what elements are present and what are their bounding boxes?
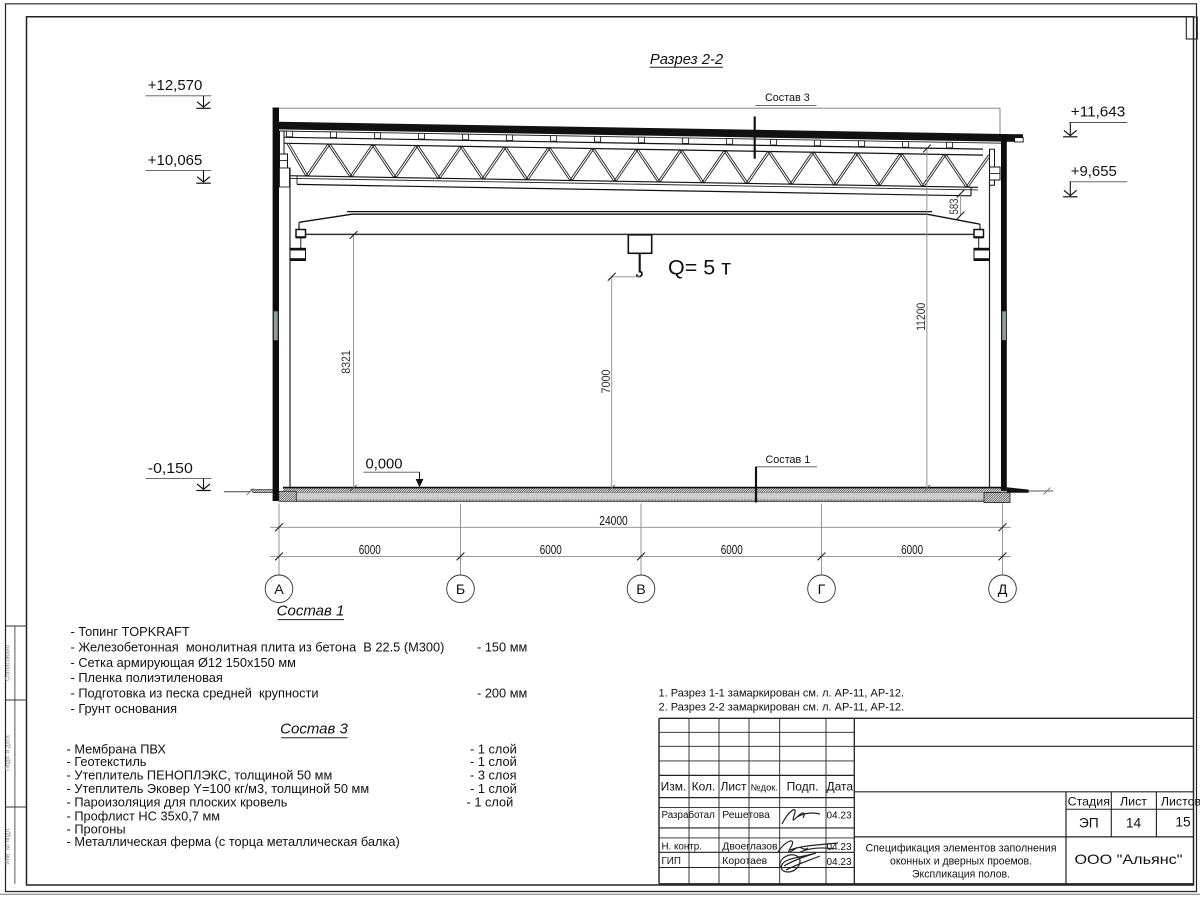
svg-text:6000: 6000 [540, 543, 562, 557]
svg-text:- 1 слой: - 1 слой [467, 795, 514, 810]
svg-text:6000: 6000 [721, 543, 743, 557]
svg-text:ООО "Альянс": ООО "Альянс" [1075, 851, 1183, 867]
svg-text:Состав 3: Состав 3 [280, 721, 348, 738]
svg-text:583: 583 [947, 198, 961, 214]
svg-text:- 150 мм: - 150 мм [477, 639, 527, 654]
svg-text:Б: Б [456, 582, 465, 598]
svg-text:24000: 24000 [599, 513, 628, 528]
svg-text:Экспликация полов.: Экспликация полов. [912, 869, 1010, 881]
svg-text:- Железобетонная монолитная п: - Железобетонная монолитная плита из бет… [71, 639, 445, 654]
svg-text:-0,150: -0,150 [148, 461, 193, 477]
svg-text:Подп. и дата: Подп. и дата [6, 735, 12, 771]
svg-text:Лист: Лист [1120, 795, 1147, 809]
svg-text:- 200 мм: - 200 мм [477, 686, 527, 701]
svg-text:Спецификация элементов заполне: Спецификация элементов заполнения [866, 843, 1057, 855]
svg-text:А: А [274, 582, 284, 598]
svg-text:- Сетка армирующая Ø12 150х150: - Сетка армирующая Ø12 150х150 мм [71, 655, 296, 670]
svg-text:Инв. № подл.: Инв. № подл. [5, 827, 12, 865]
svg-text:15: 15 [1175, 815, 1191, 830]
svg-text:1. Разрез 1-1 замаркирован см.: 1. Разрез 1-1 замаркирован см. л. АР-11,… [659, 688, 905, 700]
svg-text:+9,655: +9,655 [1071, 164, 1117, 180]
svg-text:Подп.: Подп. [787, 779, 819, 793]
svg-text:6000: 6000 [359, 543, 381, 557]
svg-text:ГИП: ГИП [662, 856, 681, 867]
svg-text:14: 14 [1126, 816, 1142, 831]
svg-text:Состав 1: Состав 1 [277, 603, 345, 620]
svg-text:Кол.: Кол. [692, 779, 716, 793]
svg-text:Коротаев: Коротаев [722, 856, 767, 867]
svg-text:Состав 1: Состав 1 [766, 454, 811, 466]
svg-text:6000: 6000 [901, 543, 923, 557]
svg-text:- Металлическая ферма (с торца: - Металлическая ферма (с торца металличе… [67, 834, 400, 849]
svg-text:04.23: 04.23 [826, 810, 851, 821]
svg-text:- Подготовка из песка средней: - Подготовка из песка средней крупности [71, 686, 319, 701]
svg-text:Q= 5 т: Q= 5 т [668, 256, 731, 280]
svg-text:Разрез 2-2: Разрез 2-2 [650, 52, 724, 68]
svg-text:Состав 3: Состав 3 [765, 92, 810, 104]
svg-text:2. Разрез 2-2 замаркирован см.: 2. Разрез 2-2 замаркирован см. л. АР-11,… [659, 702, 905, 714]
svg-text:- Пленка полиэтиленовая: - Пленка полиэтиленовая [71, 670, 223, 685]
svg-text:8321: 8321 [339, 350, 353, 374]
svg-text:оконных и дверных проемов.: оконных и дверных проемов. [890, 856, 1032, 868]
svg-text:Д: Д [998, 582, 1008, 598]
svg-text:- Пароизоляция для плоских кро: - Пароизоляция для плоских кровель [67, 795, 288, 810]
svg-text:ЭП: ЭП [1079, 816, 1099, 831]
svg-text:Стадия: Стадия [1068, 795, 1110, 809]
svg-text:- Топинг TOPKRAFT: - Топинг TOPKRAFT [71, 624, 190, 639]
svg-text:- Грунт основания: - Грунт основания [71, 701, 178, 716]
svg-text:Согласовано: Согласовано [6, 644, 12, 681]
svg-text:Дата: Дата [827, 779, 854, 793]
svg-text:0,000: 0,000 [366, 456, 403, 472]
svg-text:Н. контр.: Н. контр. [662, 842, 702, 853]
svg-text:Листов: Листов [1161, 795, 1200, 809]
svg-text:7000: 7000 [599, 369, 613, 393]
svg-text:Решетова: Решетова [722, 810, 770, 821]
svg-text:+10,065: +10,065 [148, 153, 203, 169]
svg-text:Лист: Лист [720, 779, 747, 793]
svg-text:+12,570: +12,570 [148, 78, 203, 94]
svg-text:Разработал: Разработал [662, 810, 716, 821]
svg-text:Двоеглазов: Двоеглазов [722, 842, 778, 853]
svg-text:Изм.: Изм. [661, 779, 687, 793]
svg-text:+11,643: +11,643 [1071, 105, 1126, 121]
svg-text:№док.: №док. [751, 782, 778, 792]
svg-text:В: В [636, 582, 645, 598]
svg-text:04.23: 04.23 [826, 857, 851, 868]
svg-text:Г: Г [818, 582, 826, 598]
svg-text:11200: 11200 [914, 302, 928, 330]
